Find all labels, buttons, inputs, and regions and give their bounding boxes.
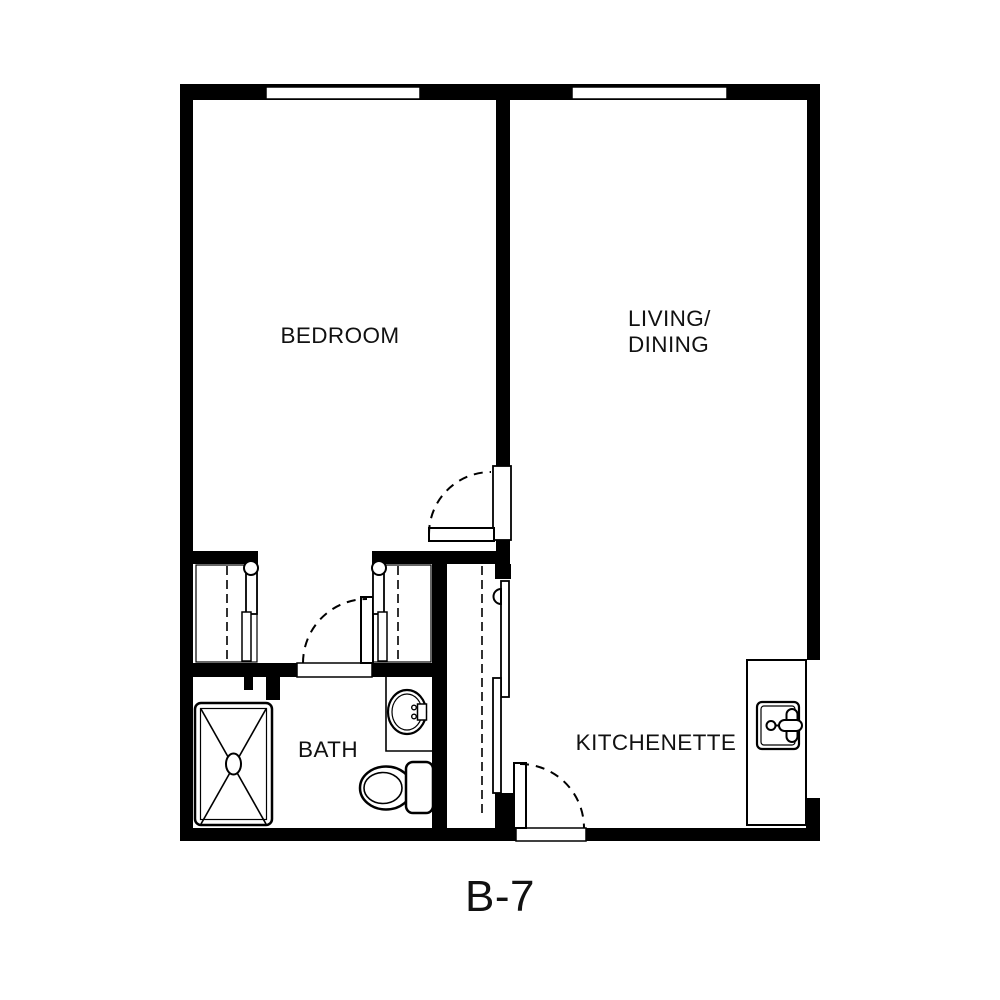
wall-bottom bbox=[180, 828, 820, 841]
wall-corner-bit bbox=[244, 677, 253, 690]
shower-drain bbox=[226, 754, 241, 775]
bedroom-doorway-opening bbox=[493, 466, 511, 540]
kitchen-faucet-lever bbox=[779, 720, 802, 731]
bath-label: BATH bbox=[298, 737, 358, 763]
living-dining-label: LIVING/ DINING bbox=[628, 306, 711, 358]
window-bedroom bbox=[266, 87, 420, 99]
kitchenette-closet-door-pull bbox=[494, 589, 501, 604]
bathroom-sink-faucet bbox=[418, 704, 427, 720]
wall-right-upper bbox=[807, 84, 820, 660]
kitchenette-label: KITCHENETTE bbox=[576, 730, 737, 756]
floor-plan-drawing bbox=[0, 0, 1000, 1000]
toilet bbox=[360, 762, 433, 813]
living-dining-label-line1: LIVING/ bbox=[628, 306, 711, 332]
bathroom-sink-handle-bottom bbox=[412, 714, 417, 719]
closet-left-door-lower bbox=[242, 612, 251, 661]
bedroom-door-leaf bbox=[429, 528, 494, 541]
kitchenette-closet-door-lower bbox=[493, 678, 501, 793]
bedroom-door bbox=[429, 466, 511, 541]
closet-right bbox=[372, 561, 431, 662]
window-living bbox=[572, 87, 727, 99]
toilet-tank bbox=[406, 762, 433, 813]
kitchenette-doorway-opening bbox=[516, 828, 586, 841]
closet-left-knob bbox=[244, 561, 258, 575]
kitchenette-door bbox=[514, 763, 586, 841]
wall-left bbox=[180, 84, 193, 841]
kitchenette-door-swing-arc bbox=[520, 764, 584, 828]
kitchenette-door-leaf bbox=[514, 763, 526, 828]
shower bbox=[195, 703, 272, 825]
bedroom-label: BEDROOM bbox=[280, 323, 399, 349]
kitchen-sink-drain bbox=[767, 721, 776, 730]
bath-door bbox=[297, 597, 373, 677]
living-dining-label-line2: DINING bbox=[628, 332, 711, 358]
bath-doorway-opening bbox=[297, 663, 372, 677]
wall-corner-stub bbox=[266, 677, 280, 700]
kitchen-counter bbox=[747, 660, 806, 825]
bath-door-leaf bbox=[361, 597, 373, 663]
plan-title: B-7 bbox=[465, 872, 535, 922]
bathroom-sink-handle-top bbox=[412, 705, 417, 710]
bathroom-vanity bbox=[386, 677, 433, 751]
wall-bath-top-right bbox=[372, 663, 447, 677]
kitchenette-closet-door-upper bbox=[501, 581, 509, 697]
bedroom-door-swing-arc bbox=[429, 472, 491, 534]
wall-bath-top-left bbox=[180, 663, 297, 677]
closet-right-door-lower bbox=[378, 612, 387, 661]
floor-plan: BEDROOM LIVING/ DINING BATH KITCHENETTE … bbox=[0, 0, 1000, 1000]
bath-door-swing-arc bbox=[303, 599, 367, 663]
wall-kcloset-stub-top bbox=[495, 564, 511, 579]
wall-divider-upper bbox=[496, 100, 510, 466]
closet-right-knob bbox=[372, 561, 386, 575]
kitchenette-closet bbox=[482, 566, 509, 818]
closet-left bbox=[196, 561, 258, 662]
